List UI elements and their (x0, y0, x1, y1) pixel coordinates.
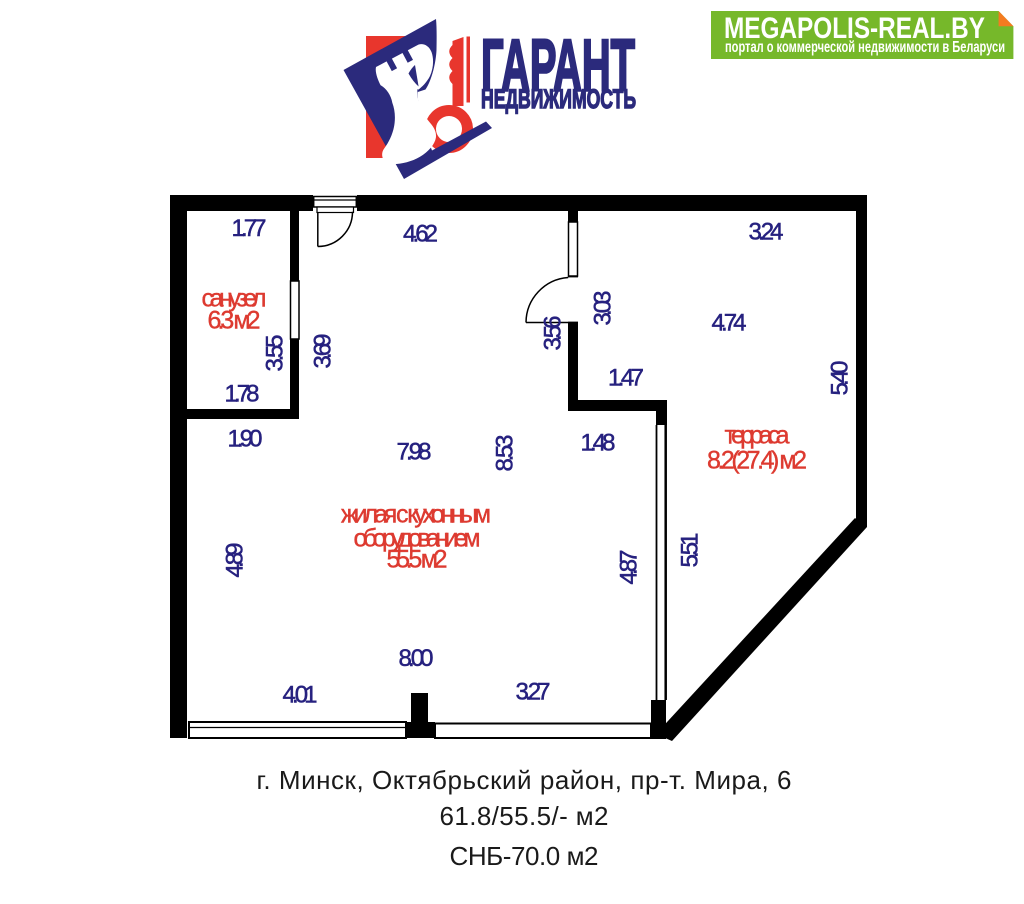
svg-text:3.03: 3.03 (590, 291, 617, 326)
svg-text:1.78: 1.78 (225, 381, 260, 408)
svg-text:портал о коммерческой недвижим: портал о коммерческой недвижимости в Бел… (725, 39, 1005, 56)
svg-text:4.62: 4.62 (403, 221, 438, 248)
svg-text:г. Минск, Октябрьский район, п: г. Минск, Октябрьский район, пр-т. Мира,… (257, 765, 792, 795)
svg-text:5.51: 5.51 (677, 533, 704, 568)
svg-text:3.56: 3.56 (540, 316, 567, 351)
svg-text:8.2(27.4) м2: 8.2(27.4) м2 (707, 447, 807, 475)
svg-text:1.48: 1.48 (581, 430, 616, 457)
svg-text:8.00: 8.00 (399, 645, 434, 672)
svg-text:3.69: 3.69 (310, 334, 337, 369)
svg-text:5.40: 5.40 (827, 361, 854, 396)
svg-text:НЕДВИЖИМОСТЬ: НЕДВИЖИМОСТЬ (481, 84, 636, 114)
svg-text:4.74: 4.74 (712, 310, 747, 337)
svg-text:7.98: 7.98 (397, 439, 432, 466)
svg-text:терраса: терраса (725, 422, 790, 450)
svg-text:6.3 м2: 6.3 м2 (208, 307, 261, 335)
svg-text:СНБ-70.0 м2: СНБ-70.0 м2 (450, 841, 599, 871)
svg-text:8.53: 8.53 (492, 435, 519, 472)
svg-text:3.55: 3.55 (262, 335, 289, 372)
svg-text:4.01: 4.01 (283, 682, 318, 709)
svg-text:1.47: 1.47 (608, 365, 644, 392)
svg-text:1.77: 1.77 (232, 215, 267, 242)
svg-text:4.87: 4.87 (616, 550, 643, 585)
svg-text:3.27: 3.27 (516, 679, 551, 706)
svg-text:3.24: 3.24 (749, 219, 784, 246)
svg-text:1.90: 1.90 (228, 426, 263, 453)
svg-text:55.5 м2: 55.5 м2 (387, 546, 448, 574)
svg-text:4.89: 4.89 (222, 543, 249, 578)
svg-text:61.8/55.5/- м2: 61.8/55.5/- м2 (440, 801, 609, 831)
